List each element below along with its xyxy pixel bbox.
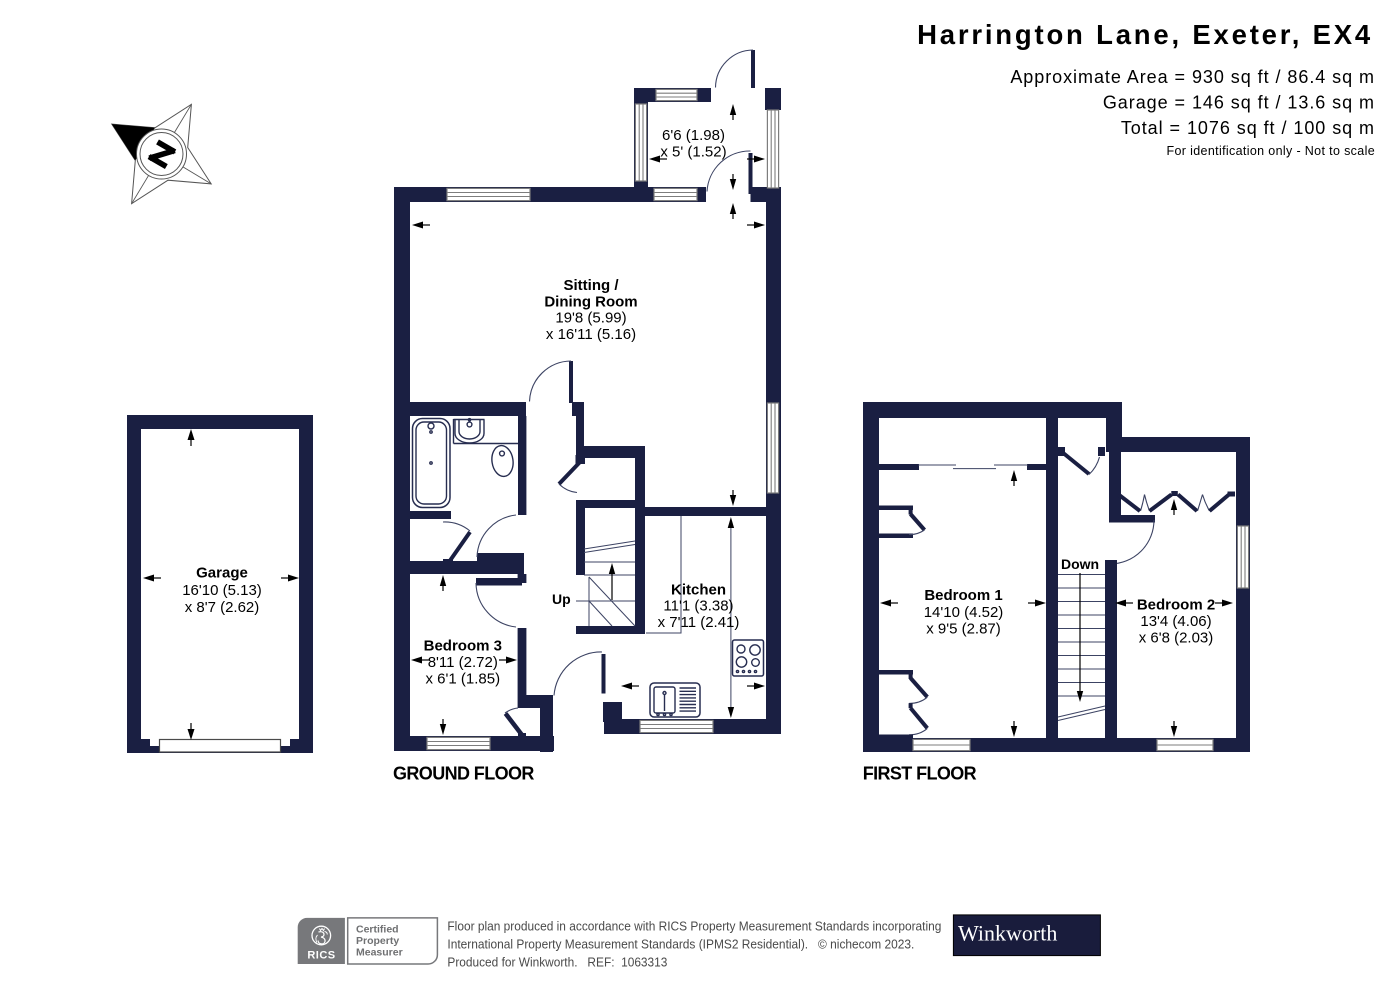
svg-text:Property: Property	[356, 935, 399, 947]
svg-text:8'11 (2.72): 8'11 (2.72)	[428, 654, 498, 671]
svg-text:11'1 (3.38): 11'1 (3.38)	[663, 598, 733, 615]
svg-text:Certified: Certified	[356, 924, 399, 936]
svg-text:RICS: RICS	[307, 950, 335, 962]
svg-text:x 5' (1.52): x 5' (1.52)	[660, 144, 726, 161]
svg-text:Bedroom 3: Bedroom 3	[424, 638, 502, 655]
svg-text:x 16'11 (5.16): x 16'11 (5.16)	[546, 326, 636, 343]
svg-text:Produced for Winkworth. REF:: Produced for Winkworth. REF: 1063313	[447, 955, 667, 969]
svg-text:Winkworth: Winkworth	[958, 921, 1057, 946]
svg-text:GROUND FLOOR: GROUND FLOOR	[393, 764, 534, 784]
svg-text:Dining Room: Dining Room	[544, 294, 637, 311]
svg-text:FIRST FLOOR: FIRST FLOOR	[863, 764, 977, 784]
svg-text:Measurer: Measurer	[356, 947, 403, 959]
svg-text:Sitting /: Sitting /	[564, 277, 620, 294]
svg-text:14'10 (4.52): 14'10 (4.52)	[924, 604, 1004, 621]
svg-text:x 6'8 (2.03): x 6'8 (2.03)	[1139, 630, 1214, 647]
svg-text:Approximate Area = 930 sq ft /: Approximate Area = 930 sq ft / 86.4 sq m	[1010, 67, 1375, 87]
svg-text:Floor plan produced in accorda: Floor plan produced in accordance with R…	[447, 920, 941, 934]
svg-text:Garage = 146 sq ft / 13.6 sq m: Garage = 146 sq ft / 13.6 sq m	[1103, 93, 1375, 113]
svg-text:x 6'1 (1.85): x 6'1 (1.85)	[426, 671, 501, 688]
svg-text:Up: Up	[552, 591, 571, 607]
svg-text:Kitchen: Kitchen	[671, 582, 726, 599]
svg-text:x 7'11 (2.41): x 7'11 (2.41)	[658, 614, 740, 631]
svg-text:6'6 (1.98): 6'6 (1.98)	[662, 127, 725, 144]
svg-text:For identification only - Not: For identification only - Not to scale	[1166, 144, 1375, 158]
svg-text:Bedroom 2: Bedroom 2	[1137, 597, 1215, 614]
svg-text:Harrington Lane, Exeter, EX4: Harrington Lane, Exeter, EX4	[917, 19, 1373, 50]
svg-text:Bedroom 1: Bedroom 1	[924, 587, 1002, 604]
svg-text:x 9'5 (2.87): x 9'5 (2.87)	[926, 621, 1001, 638]
svg-text:Total = 1076 sq ft / 100 sq m: Total = 1076 sq ft / 100 sq m	[1121, 118, 1375, 138]
svg-text:Down: Down	[1061, 556, 1099, 572]
svg-text:13'4 (4.06): 13'4 (4.06)	[1140, 613, 1211, 630]
svg-text:16'10 (5.13): 16'10 (5.13)	[182, 582, 262, 599]
svg-text:Garage: Garage	[196, 565, 248, 582]
svg-text:x 8'7 (2.62): x 8'7 (2.62)	[185, 599, 260, 616]
svg-text:19'8 (5.99): 19'8 (5.99)	[555, 310, 626, 327]
svg-text:International Property Measure: International Property Measurement Stand…	[447, 937, 914, 951]
